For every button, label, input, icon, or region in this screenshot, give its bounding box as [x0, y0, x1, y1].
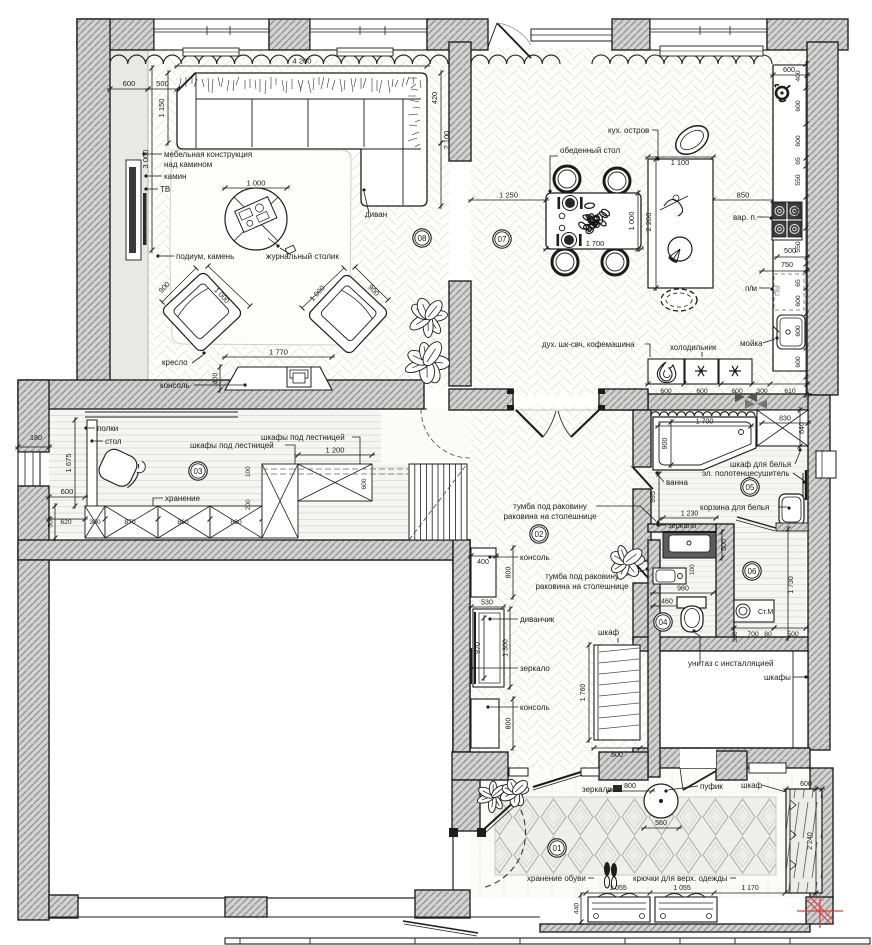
- svg-text:600: 600: [795, 325, 802, 337]
- svg-text:1 700: 1 700: [696, 419, 714, 426]
- svg-text:04: 04: [659, 618, 668, 627]
- svg-text:ПМ: ПМ: [775, 285, 782, 296]
- svg-text:550: 550: [795, 174, 802, 186]
- svg-text:860: 860: [230, 519, 242, 526]
- svg-text:995: 995: [650, 491, 657, 503]
- svg-text:4 200: 4 200: [292, 57, 311, 66]
- svg-text:03: 03: [194, 467, 203, 476]
- svg-text:1 230: 1 230: [681, 511, 699, 518]
- svg-text:1 170: 1 170: [741, 885, 759, 892]
- svg-text:870: 870: [124, 519, 136, 526]
- svg-text:350: 350: [732, 631, 739, 642]
- svg-text:2 200: 2 200: [644, 212, 653, 231]
- svg-text:хранение обуви: хранение обуви: [527, 874, 586, 883]
- svg-text:ТВ: ТВ: [160, 185, 170, 194]
- svg-text:тумба под раковину: тумба под раковину: [513, 502, 587, 511]
- svg-text:970: 970: [475, 642, 482, 654]
- svg-text:1 150: 1 150: [157, 98, 166, 117]
- svg-text:01: 01: [553, 844, 562, 853]
- svg-text:600: 600: [795, 356, 802, 368]
- svg-text:раковина на столешнице: раковина на столешнице: [535, 582, 629, 591]
- svg-text:1 000: 1 000: [246, 179, 265, 188]
- svg-text:шкаф: шкаф: [598, 628, 620, 637]
- svg-text:200: 200: [245, 499, 252, 510]
- svg-text:консоль: консоль: [520, 703, 550, 712]
- svg-text:1 300: 1 300: [503, 639, 510, 657]
- svg-text:1 770: 1 770: [269, 348, 288, 357]
- svg-text:обеденный стол: обеденный стол: [560, 146, 620, 155]
- svg-text:600: 600: [795, 100, 802, 112]
- svg-text:шкафы под лестницей: шкафы под лестницей: [261, 433, 345, 442]
- svg-text:600: 600: [795, 295, 802, 307]
- svg-text:600: 600: [795, 135, 802, 147]
- svg-text:800: 800: [506, 718, 513, 730]
- svg-text:1 000: 1 000: [627, 211, 636, 230]
- svg-text:750: 750: [781, 260, 793, 269]
- svg-text:консоль: консоль: [160, 381, 190, 390]
- svg-text:440: 440: [574, 903, 581, 915]
- svg-text:корзина для белья: корзина для белья: [700, 503, 769, 512]
- svg-text:п/м: п/м: [745, 284, 757, 293]
- svg-text:460: 460: [661, 599, 673, 606]
- svg-text:камин: камин: [164, 172, 187, 181]
- svg-text:980: 980: [677, 586, 689, 593]
- svg-text:подиум, камень: подиум, камень: [176, 252, 234, 261]
- svg-text:65: 65: [795, 157, 802, 165]
- svg-text:300: 300: [756, 388, 768, 395]
- svg-text:500: 500: [721, 539, 728, 551]
- svg-text:620: 620: [60, 519, 72, 526]
- svg-text:дух. шк-свч, кофемашина: дух. шк-свч, кофемашина: [542, 340, 635, 349]
- svg-text:2 240: 2 240: [807, 832, 814, 850]
- svg-text:610: 610: [784, 388, 796, 395]
- svg-text:эл. полотенцесушитель: эл. полотенцесушитель: [702, 469, 790, 478]
- svg-text:800: 800: [624, 783, 636, 790]
- svg-text:1 250: 1 250: [499, 191, 518, 200]
- svg-text:05: 05: [746, 483, 755, 492]
- svg-text:1 760: 1 760: [580, 684, 587, 702]
- svg-text:100: 100: [689, 564, 696, 575]
- svg-text:ванна: ванна: [666, 478, 688, 487]
- svg-text:300: 300: [89, 519, 101, 526]
- svg-text:1 055: 1 055: [673, 885, 691, 892]
- svg-text:400: 400: [213, 373, 220, 385]
- svg-text:80: 80: [764, 631, 772, 638]
- svg-text:мойка: мойка: [740, 339, 763, 348]
- svg-text:07: 07: [498, 235, 507, 244]
- svg-text:65: 65: [795, 279, 802, 287]
- svg-text:600: 600: [696, 388, 708, 395]
- svg-text:крючки для верх. одежды: крючки для верх. одежды: [633, 874, 728, 883]
- svg-text:600: 600: [660, 388, 672, 395]
- svg-text:640: 640: [799, 422, 806, 434]
- svg-text:над камином: над камином: [164, 160, 212, 169]
- svg-text:1 100: 1 100: [671, 158, 690, 167]
- svg-text:2 100: 2 100: [442, 131, 451, 150]
- svg-text:550: 550: [795, 241, 802, 253]
- svg-text:кресло: кресло: [162, 358, 188, 367]
- svg-text:шкафы: шкафы: [764, 673, 791, 682]
- svg-text:860: 860: [177, 519, 189, 526]
- svg-text:180: 180: [30, 433, 42, 442]
- svg-text:холодильник: холодильник: [670, 343, 717, 352]
- svg-text:1 730: 1 730: [788, 576, 795, 594]
- svg-text:пуфик: пуфик: [700, 782, 723, 791]
- svg-text:600: 600: [123, 79, 136, 88]
- svg-text:500: 500: [156, 79, 169, 88]
- svg-text:1 055: 1 055: [609, 885, 627, 892]
- svg-text:500: 500: [48, 516, 55, 528]
- svg-text:530: 530: [481, 600, 493, 607]
- svg-text:600: 600: [800, 781, 812, 788]
- svg-text:Ст.М: Ст.М: [758, 609, 773, 616]
- svg-text:400: 400: [795, 70, 802, 82]
- svg-text:06: 06: [748, 567, 757, 576]
- svg-text:3 000: 3 000: [141, 149, 150, 168]
- svg-text:830: 830: [779, 416, 791, 423]
- svg-text:раковина на столешнице: раковина на столешнице: [503, 512, 597, 521]
- svg-text:420: 420: [430, 92, 439, 104]
- svg-text:кух. остров: кух. остров: [608, 126, 649, 135]
- svg-text:560: 560: [655, 820, 667, 827]
- svg-text:унитаз с инсталляцией: унитаз с инсталляцией: [688, 659, 773, 668]
- svg-text:диванчик: диванчик: [520, 615, 555, 624]
- svg-text:400: 400: [477, 559, 489, 566]
- svg-text:600: 600: [611, 752, 623, 759]
- svg-text:шкаф для белья: шкаф для белья: [730, 460, 791, 469]
- svg-text:800: 800: [506, 567, 513, 579]
- svg-text:850: 850: [737, 191, 750, 200]
- svg-text:1 700: 1 700: [586, 239, 605, 248]
- svg-text:хранение: хранение: [165, 494, 201, 503]
- svg-text:шкафы под лестницей: шкафы под лестницей: [190, 441, 274, 450]
- svg-text:700: 700: [747, 631, 759, 638]
- svg-text:консоль: консоль: [520, 553, 550, 562]
- svg-text:тумба под раковину: тумба под раковину: [545, 572, 619, 581]
- svg-text:полки: полки: [97, 424, 118, 433]
- svg-text:600: 600: [783, 65, 795, 74]
- svg-text:мебельная конструкция: мебельная конструкция: [164, 150, 252, 159]
- svg-text:600: 600: [795, 206, 802, 218]
- svg-text:зеркало: зеркало: [668, 521, 696, 530]
- svg-text:600: 600: [61, 487, 74, 496]
- svg-text:журнальный столик: журнальный столик: [266, 252, 339, 261]
- svg-text:зеркало: зеркало: [520, 664, 550, 673]
- svg-text:вар. п.: вар. п.: [733, 213, 757, 222]
- svg-text:стол: стол: [105, 437, 122, 446]
- svg-text:600: 600: [361, 478, 368, 489]
- svg-text:100: 100: [245, 466, 252, 477]
- svg-text:1 200: 1 200: [325, 446, 344, 455]
- svg-text:08: 08: [418, 234, 427, 243]
- svg-text:1 675: 1 675: [64, 453, 73, 472]
- svg-text:шкаф: шкаф: [741, 781, 763, 790]
- svg-text:900: 900: [662, 438, 669, 450]
- svg-text:02: 02: [535, 530, 544, 539]
